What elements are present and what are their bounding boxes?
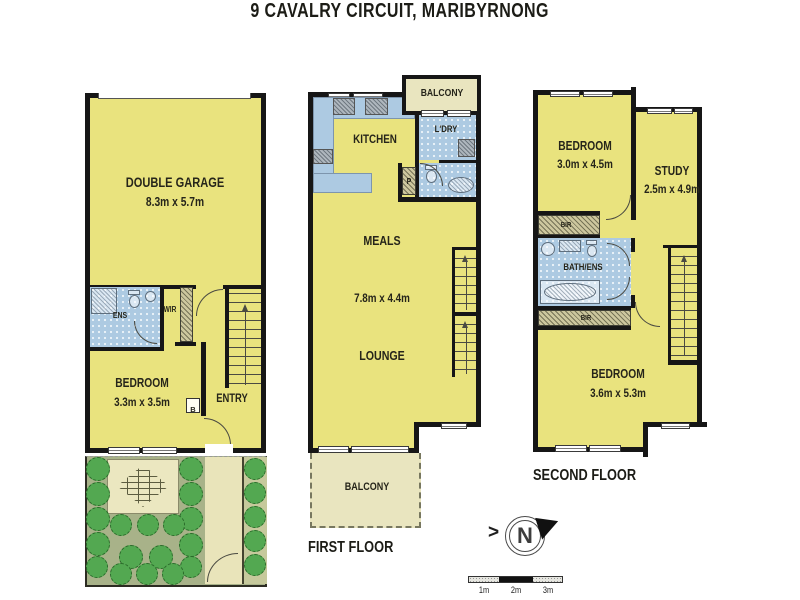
room-bedroom-dims: 3.3m x 3.5m [114, 396, 170, 408]
compass-north-label: N [517, 523, 533, 548]
bush [244, 458, 266, 480]
cupboard-box: B [186, 398, 200, 413]
window [555, 445, 587, 452]
room-bath-label: BATH/ENS [563, 263, 602, 273]
room-bedroom1-label: BEDROOM [558, 140, 612, 153]
bush [86, 457, 110, 481]
balcony-bottom-label: BALCONY [345, 482, 390, 493]
second-floor-caption: SECOND FLOOR [533, 468, 636, 484]
stair-arrow [462, 321, 468, 328]
second-floor-plan: BEDROOM 3.0m x 4.5m STUDY 2.5m x 4.9m BI… [533, 90, 702, 452]
door-arc [134, 321, 157, 344]
door-arc [635, 302, 660, 327]
bush [244, 530, 266, 552]
room-study-label: STUDY [655, 165, 690, 178]
room-garage-dims: 8.3m x 5.7m [146, 196, 204, 209]
kitchen-bench [313, 173, 372, 193]
wall [668, 360, 697, 365]
wall [201, 342, 206, 416]
vanity-fixture [559, 240, 581, 252]
patio-paving [107, 459, 179, 514]
compass-chevron-icon: > [488, 522, 499, 544]
room-bedroom2-dims: 3.6m x 5.3m [590, 387, 646, 399]
garage-door [98, 93, 251, 99]
room-bedroom-label: BEDROOM [115, 377, 169, 390]
wall [631, 238, 635, 252]
bush [162, 563, 184, 585]
bush [110, 563, 132, 585]
window [674, 108, 693, 114]
scale-bar-segment [499, 577, 533, 582]
door-opening [205, 444, 233, 453]
room-entry-label: ENTRY [216, 394, 248, 406]
stair-arrow [681, 255, 687, 262]
wall [538, 326, 631, 330]
window [661, 423, 690, 429]
window [447, 110, 471, 117]
bush [110, 514, 132, 536]
window [589, 445, 621, 452]
window [108, 447, 140, 454]
laundry-trough-fixture [458, 139, 475, 157]
stair-arrow [242, 304, 248, 311]
bush [244, 506, 266, 528]
sink-fixture [333, 98, 355, 115]
bush [179, 482, 203, 506]
bush [244, 554, 266, 576]
bathtub-basin [544, 283, 596, 301]
dishwasher-fixture [313, 149, 333, 164]
room-wir-label: WIR [164, 306, 177, 314]
bush [86, 507, 110, 531]
staircase [671, 248, 697, 358]
staircase [455, 316, 476, 376]
robe-bottom-label: BIR [581, 314, 592, 322]
basin-fixture [145, 291, 156, 302]
compass: > N [486, 512, 566, 562]
bush [137, 514, 159, 536]
scale-label-1m: 1m [479, 586, 489, 595]
wardrobe-hatch [180, 287, 193, 342]
door-arc [196, 289, 223, 316]
cooktop-fixture [365, 98, 388, 115]
room-garage-label: DOUBLE GARAGE [126, 176, 224, 190]
first-floor-plan: KITCHEN L'DRY P MEALS 7.8m x 4.4m LOUNGE [308, 92, 481, 453]
door-arc [606, 195, 631, 220]
bush [136, 563, 158, 585]
room-meals-label: MEALS [363, 234, 400, 247]
window [441, 423, 467, 429]
room-lounge-label: LOUNGE [359, 349, 405, 362]
scale-label-2m: 2m [511, 586, 521, 595]
room-bedroom2-label: BEDROOM [591, 368, 645, 381]
toilet-fixture [587, 245, 597, 257]
basin-fixture [541, 242, 555, 256]
room-ens: ENS [90, 287, 164, 351]
stair-rail [245, 311, 246, 385]
stair-rail [684, 262, 685, 355]
cupboard-label: B [190, 405, 195, 414]
staircase [229, 285, 261, 388]
page-title: 9 CAVALRY CIRCUIT, MARIBYRNONG [0, 0, 800, 23]
stair-rail [466, 328, 467, 374]
room-bedroom1-dims: 3.0m x 4.5m [557, 158, 613, 170]
scale-bar [468, 576, 563, 583]
basin-fixture [448, 177, 474, 193]
room-living-dims: 7.8m x 4.4m [354, 292, 410, 304]
stair-rail [466, 262, 467, 310]
door-arc [420, 163, 443, 186]
bush [179, 457, 203, 481]
toilet-fixture [129, 295, 140, 308]
bush [244, 482, 266, 504]
room-pantry-label: P [407, 177, 412, 186]
window [421, 110, 444, 117]
garden [85, 456, 267, 587]
wall [175, 342, 196, 346]
bush [86, 532, 110, 556]
window [583, 91, 613, 97]
balcony-bottom: BALCONY [310, 453, 421, 528]
window [550, 91, 580, 97]
bush [179, 533, 203, 557]
scale-label-3m: 3m [543, 586, 553, 595]
balcony-top: BALCONY [402, 75, 481, 115]
room-laundry: L'DRY [419, 111, 476, 160]
bathtub-fixture [540, 280, 600, 304]
wall [631, 95, 636, 220]
window [351, 446, 409, 453]
staircase [455, 250, 476, 312]
page-title-text: 9 CAVALRY CIRCUIT, MARIBYRNONG [251, 0, 550, 23]
brick-paving-motif [117, 465, 169, 507]
bush [163, 514, 185, 536]
balcony-top-label: BALCONY [421, 88, 464, 99]
wall [398, 197, 476, 202]
stair-arrow [462, 255, 468, 262]
window [647, 108, 672, 114]
room-laundry-label: L'DRY [435, 125, 458, 135]
floorplan-page: 9 CAVALRY CIRCUIT, MARIBYRNONG DOUBLE GA… [0, 0, 800, 600]
window [142, 447, 177, 454]
room-wc [419, 163, 476, 197]
bush [86, 482, 110, 506]
room-kitchen-label: KITCHEN [353, 133, 397, 145]
first-floor-caption: FIRST FLOOR [308, 540, 393, 556]
room-study-dims: 2.5m x 4.9m [644, 183, 700, 195]
robe-top-label: BIR [561, 221, 572, 229]
door-arc [204, 418, 231, 445]
room-ens-label: ENS [113, 311, 127, 320]
bush [86, 556, 108, 578]
window [318, 446, 349, 453]
ground-floor-plan: DOUBLE GARAGE 8.3m x 5.7m ENS WIR ENTRY [85, 93, 266, 453]
